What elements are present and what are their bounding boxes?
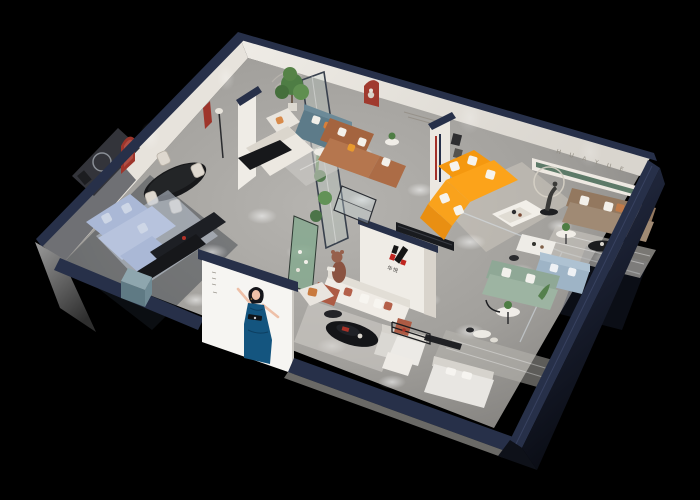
woman-face (252, 290, 260, 300)
plant-table (385, 139, 399, 146)
niche-bear-figurine (368, 92, 374, 98)
showroom-render-stage: H U A Y U E (0, 0, 700, 500)
dark-round-table (324, 310, 342, 318)
partition-dining (238, 92, 256, 190)
showroom-render: H U A Y U E (0, 0, 700, 500)
console-red-accent (182, 236, 186, 240)
